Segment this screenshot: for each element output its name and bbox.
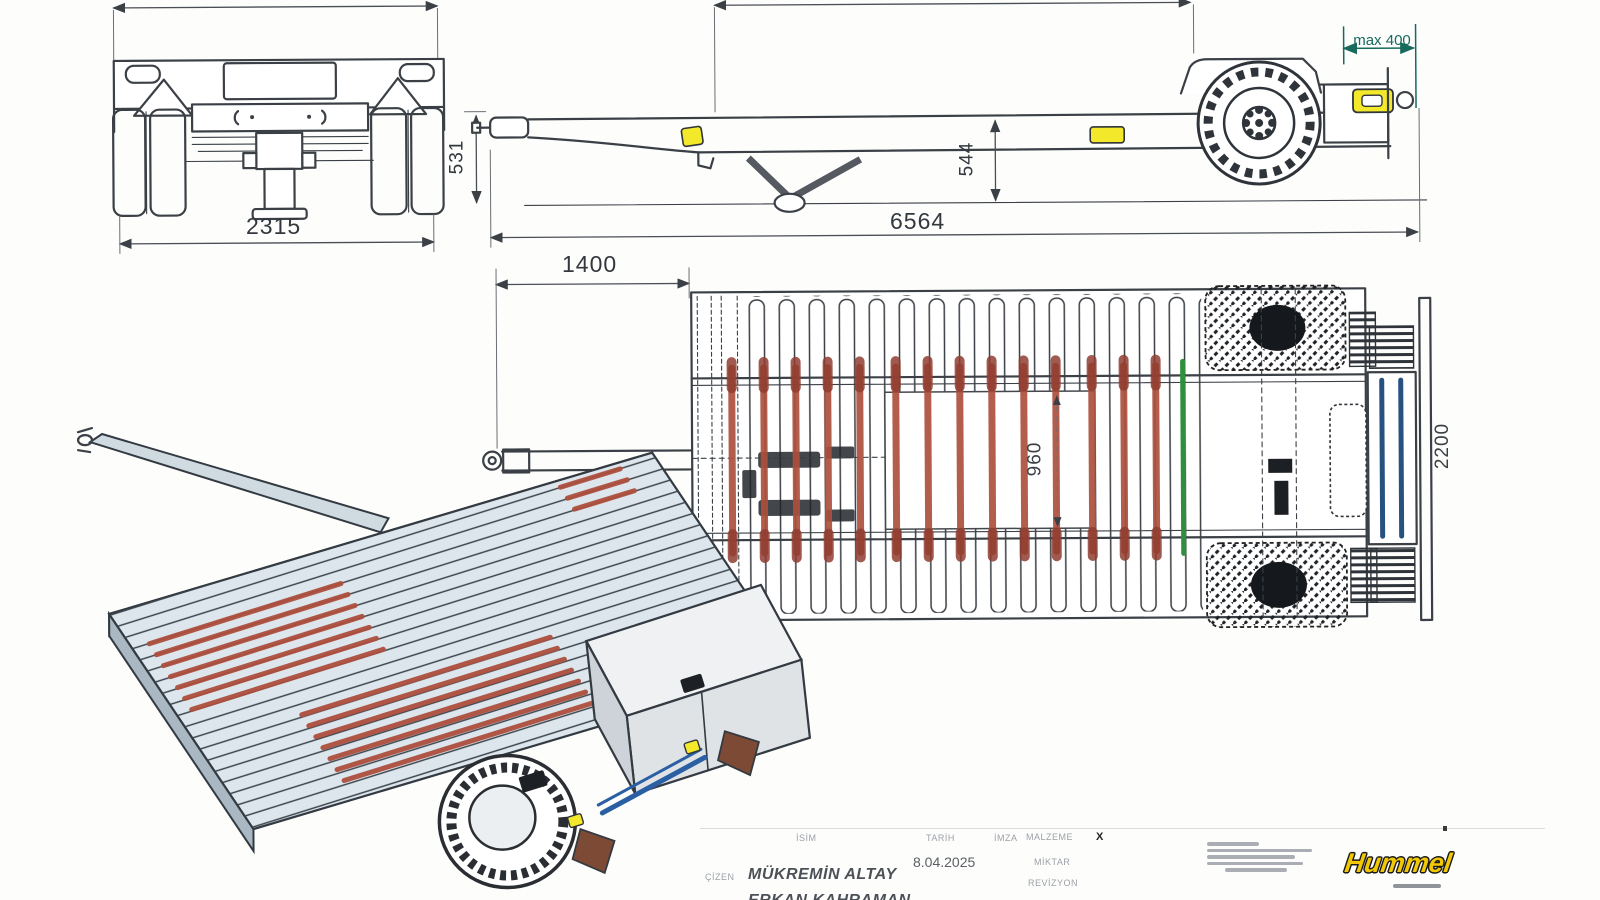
dim-rear-overhang: max 400 (1346, 32, 1418, 49)
scanned-technical-drawing: 2315 531 544 6564 1400 max 400 960 2200 … (0, 0, 1600, 900)
drawn-by-name-2: ERKAN KAHRAMAN (748, 892, 911, 900)
logo-tagline (1393, 884, 1441, 888)
date-value: 8.04.2025 (913, 854, 975, 870)
imza-label: İMZA (994, 833, 1018, 843)
dim-inner-width: 960 (1024, 442, 1046, 477)
dim-platform-width: 2200 (1432, 423, 1454, 469)
dim-hitch-height: 531 (446, 140, 468, 175)
side-view (471, 1, 1426, 248)
cizen-label: ÇİZEN (705, 872, 735, 882)
scan-artifact (1443, 826, 1447, 831)
company-logo: Hummel (1343, 848, 1454, 879)
dim-rear-width: 2315 (246, 213, 301, 240)
malzeme-value: X (1096, 831, 1103, 843)
dim-drawbar-length: 1400 (562, 251, 617, 278)
tarih-label: TARİH (926, 833, 955, 843)
revizyon-label: REVİZYON (1028, 878, 1078, 888)
miktar-label: MİKTAR (1034, 857, 1070, 867)
company-address-block (1207, 842, 1312, 875)
isim-label: İSİM (796, 833, 817, 843)
drawn-by-name: MÜKREMİN ALTAY (748, 866, 897, 884)
drawing-artwork (0, 0, 1600, 900)
dim-platform-height: 544 (956, 142, 978, 177)
dim-overall-length: 6564 (890, 208, 945, 235)
malzeme-label: MALZEME (1026, 832, 1073, 842)
